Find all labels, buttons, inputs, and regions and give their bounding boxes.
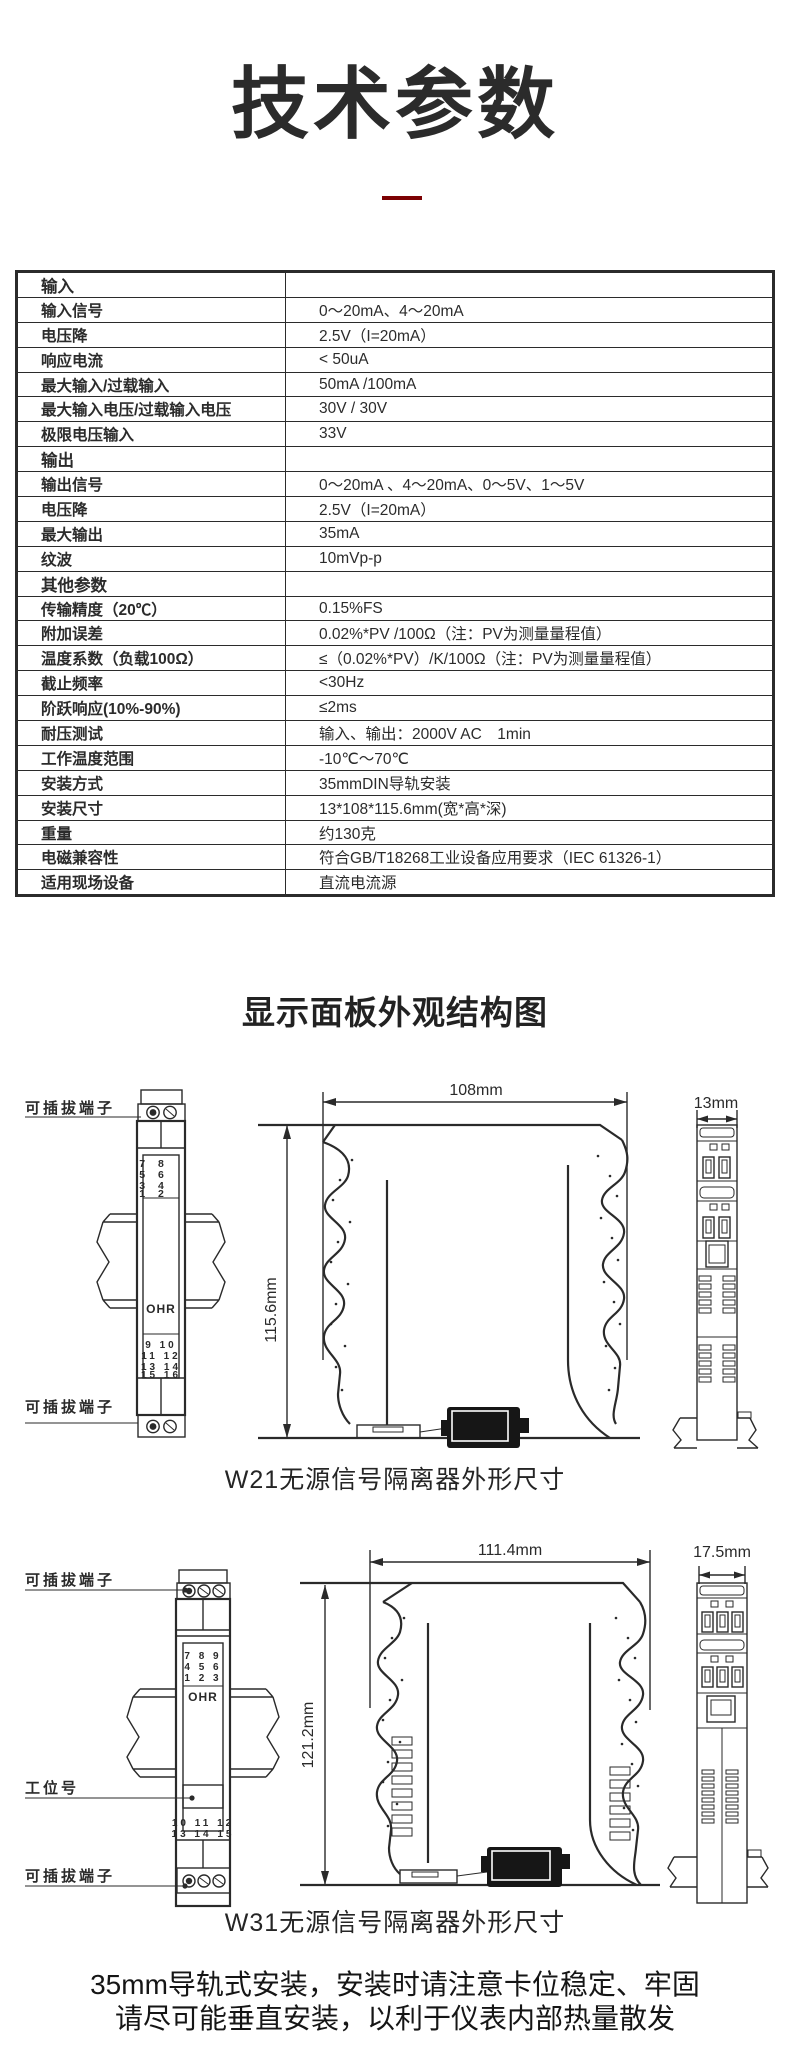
install-note-line1: 35mm导轨式安装，安装时请注意卡位稳定、牢固 [0,1968,790,2002]
table-row: 工作温度范围-10℃～70℃ [18,745,772,770]
terminal-numbers: 13 14 15 [172,1829,235,1840]
table-row: 其他参数 [18,571,772,596]
w31-terminal-top-label: 可插拔端子 [25,1571,115,1589]
din-rail [97,1214,225,1308]
spec-value: 35mmDIN导轨安装 [286,771,772,795]
spec-value: -10℃～70℃ [286,746,772,770]
spec-label: 最大输入/过载输入 [18,373,286,397]
spec-label: 电磁兼容性 [18,845,286,869]
screw-icon [150,1423,157,1430]
spec-value: 约130克 [286,821,772,845]
screw-icon [186,1588,192,1594]
w31-station-label: 工位号 [25,1779,79,1797]
left-fin-edge [377,1602,401,1874]
install-note: 35mm导轨式安装，安装时请注意卡位稳定、牢固 请尽可能垂直安装，以利于仪表内部… [0,1968,790,2036]
w31-front-width-dimension: 17.5mm [693,1544,751,1561]
left-fin-edge [323,1142,350,1424]
spec-value: 0～20mA、4～20mA [286,298,772,322]
spec-label: 传输精度（20℃） [18,597,286,621]
spec-value: 0～20mA 、4～20mA、0～5V、1～5V [286,472,772,496]
table-row: 极限电压输入33V [18,421,772,446]
table-row: 电磁兼容性符合GB/T18268工业设备应用要求（IEC 61326-1） [18,844,772,869]
table-row: 输入信号0～20mA、4～20mA [18,297,772,322]
w21-side-view: 可插拔端子 7 8 5 6 3 4 1 2 OHR 9 10 11 12 13 … [25,1090,225,1437]
w21-width-dimension: 108mm [449,1082,502,1099]
table-row: 输入 [18,273,772,297]
spec-value: ≤（0.02%*PV）/K/100Ω（注：PV为测量量程值） [286,646,772,670]
table-row: 温度系数（负载100Ω）≤（0.02%*PV）/K/100Ω（注：PV为测量量程… [18,645,772,670]
screw-icon [150,1109,157,1116]
din-rail-cross [668,1850,768,1887]
spec-value: 0.15%FS [286,597,772,621]
w21-front-width-dimension: 13mm [694,1095,738,1112]
spec-value: 符合GB/T18268工业设备应用要求（IEC 61326-1） [286,845,772,869]
rail-hook [748,1850,761,1857]
spec-label: 安装方式 [18,771,286,795]
screw-icon [186,1878,192,1884]
spec-label: 截止频率 [18,671,286,695]
table-row: 纹波10mVp-p [18,546,772,571]
spec-value: 30V / 30V [286,397,772,421]
diagram-section-heading: 显示面板外观结构图 [0,986,790,1034]
terminal-numbers: 7 8 9 [184,1651,221,1662]
right-fin-edge [602,1140,628,1424]
spec-label: 电压降 [18,323,286,347]
w21-front-view: 13mm [673,1095,758,1448]
din-rail-cross [673,1412,758,1448]
spec-value: 35mA [286,522,772,546]
spec-label: 阶跃响应(10%-90%) [18,696,286,720]
spec-label: 最大输入电压/过载输入电压 [18,397,286,421]
spec-value: 13*108*115.6mm(宽*高*深) [286,796,772,820]
w31-caption: W31无源信号隔离器外形尺寸 [0,1903,790,1939]
spec-label: 其他参数 [18,572,286,596]
title-accent-dash [382,196,422,200]
table-row: 安装方式35mmDIN导轨安装 [18,770,772,795]
spec-label: 最大输出 [18,522,286,546]
w21-terminal-top-label: 可插拔端子 [25,1099,115,1117]
vent-slots [697,1276,737,1382]
vent-grid [702,1770,738,1823]
terminal-numbers: 1 2 [139,1188,169,1200]
station-number-box [183,1785,223,1808]
spec-label: 重量 [18,821,286,845]
spec-label: 输出信号 [18,472,286,496]
spec-value: <30Hz [286,671,772,695]
w21-diagram: 可插拔端子 7 8 5 6 3 4 1 2 OHR 9 10 11 12 13 … [0,1060,790,1460]
spec-label: 输出 [18,447,286,471]
table-row: 响应电流< 50uA [18,347,772,372]
terminal-numbers: 9 10 [145,1340,176,1351]
power-connector [441,1407,529,1448]
spec-table: 输入 输入信号0～20mA、4～20mA 电压降2.5V（I=20mA） 响应电… [15,270,775,897]
w21-profile-view: 108mm 115.6mm [258,1082,640,1448]
terminal-numbers: 10 11 12 [172,1818,234,1829]
w31-terminal-bottom-label: 可插拔端子 [25,1867,115,1885]
table-row: 适用现场设备直流电流源 [18,869,772,894]
spec-value: 50mA /100mA [286,373,772,397]
spec-value: 2.5V（I=20mA） [286,497,772,521]
table-row: 最大输入/过载输入50mA /100mA [18,372,772,397]
table-row: 截止频率<30Hz [18,670,772,695]
fin-dots [382,1617,640,1832]
spec-label: 耐压测试 [18,721,286,745]
spec-label: 适用现场设备 [18,870,286,894]
spec-label: 温度系数（负载100Ω） [18,646,286,670]
table-row: 传输精度（20℃）0.15%FS [18,596,772,621]
spec-value: 输入、输出：2000V AC 1min [286,721,772,745]
table-row: 电压降2.5V（I=20mA） [18,496,772,521]
w31-diagram: 可插拔端子 7 8 9 4 5 6 1 2 3 OHR 10 11 12 13 … [0,1538,790,1910]
table-row: 输出信号0～20mA 、4～20mA、0～5V、1～5V [18,471,772,496]
table-row: 阶跃响应(10%-90%)≤2ms [18,695,772,720]
spec-value: < 50uA [286,348,772,372]
table-row: 最大输出35mA [18,521,772,546]
w31-height-dimension: 121.2mm [300,1702,317,1769]
spec-value: 10mVp-p [286,547,772,571]
w21-height-dimension: 115.6mm [263,1277,280,1343]
table-row: 最大输入电压/过载输入电压30V / 30V [18,396,772,421]
spec-label: 输入信号 [18,298,286,322]
w31-side-view: 可插拔端子 7 8 9 4 5 6 1 2 3 OHR 10 11 12 13 … [25,1570,279,1906]
spec-label: 安装尺寸 [18,796,286,820]
spec-label: 输入 [18,273,286,297]
spec-value: 直流电流源 [286,870,772,894]
w31-width-dimension: 111.4mm [478,1542,542,1559]
spec-label: 工作温度范围 [18,746,286,770]
terminal-numbers: 11 12 [141,1351,180,1362]
spec-label: 电压降 [18,497,286,521]
table-row: 耐压测试输入、输出：2000V AC 1min [18,720,772,745]
w21-caption: W21无源信号隔离器外形尺寸 [0,1460,790,1496]
power-connector [481,1847,570,1887]
spec-label: 纹波 [18,547,286,571]
spec-label: 附加误差 [18,621,286,645]
table-row: 安装尺寸13*108*115.6mm(宽*高*深) [18,795,772,820]
page-title: 技术参数 [0,42,790,154]
spec-label: 响应电流 [18,348,286,372]
table-row: 输出 [18,446,772,471]
spec-value: ≤2ms [286,696,772,720]
spec-value: 0.02%*PV /100Ω（注：PV为测量量程值） [286,621,772,645]
spec-value [286,273,772,297]
w31-profile-view: 111.4mm 121.2mm [300,1542,660,1887]
terminal-numbers: 1 2 3 [184,1673,221,1684]
spec-value [286,572,772,596]
table-row: 电压降2.5V（I=20mA） [18,322,772,347]
w31-front-view: 17.5mm [668,1544,768,1903]
spec-label: 极限电压输入 [18,422,286,446]
brand-logo: OHR [146,1302,176,1316]
install-note-line2: 请尽可能垂直安装，以利于仪表内部热量散发 [0,2002,790,2036]
fin-dots [330,1155,622,1392]
rail-hook [738,1412,751,1418]
spec-value [286,447,772,471]
spec-value: 33V [286,422,772,446]
right-fin-edge [620,1602,646,1885]
table-row: 重量约130克 [18,820,772,845]
brand-logo: OHR [188,1690,218,1704]
spec-value: 2.5V（I=20mA） [286,323,772,347]
terminal-numbers: 4 5 6 [184,1662,221,1673]
table-row: 附加误差0.02%*PV /100Ω（注：PV为测量量程值） [18,620,772,645]
w21-terminal-bottom-label: 可插拔端子 [25,1398,115,1416]
